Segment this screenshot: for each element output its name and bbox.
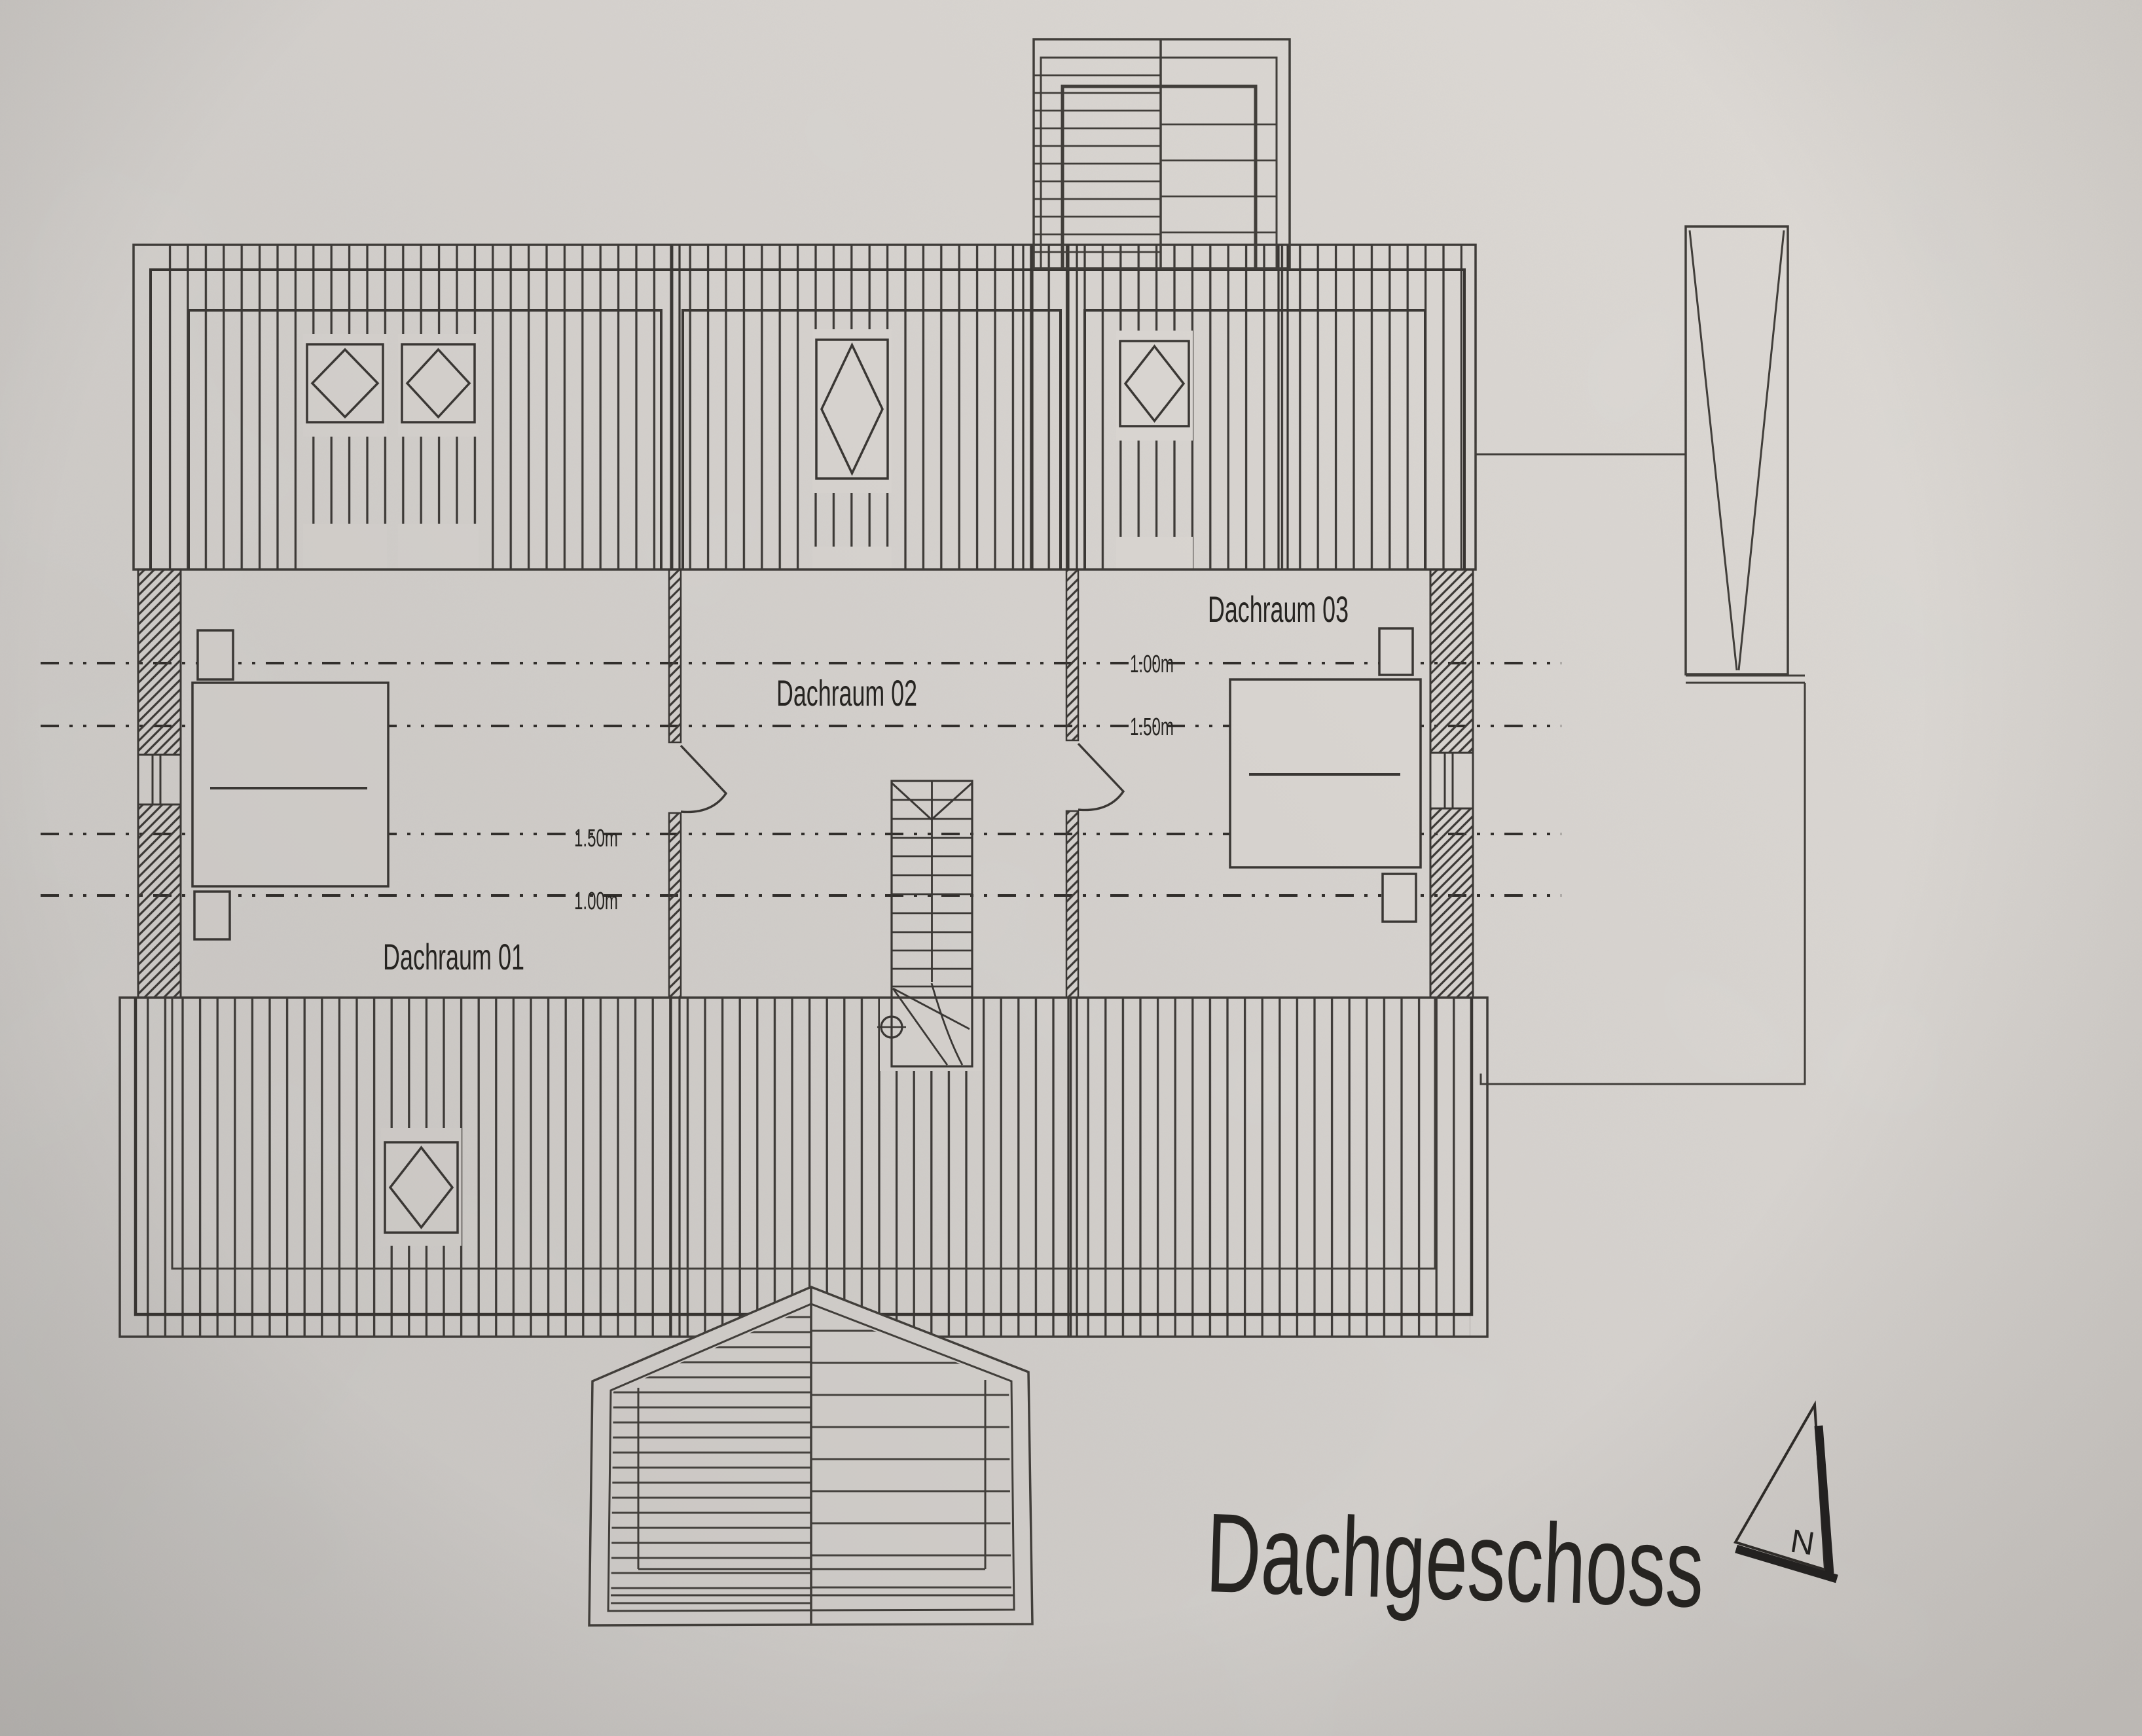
svg-text:Dachraum 01: Dachraum 01 xyxy=(383,936,524,977)
svg-text:1.00m: 1.00m xyxy=(1130,651,1174,678)
svg-text:1.00m: 1.00m xyxy=(574,888,618,915)
svg-text:Dachraum 03: Dachraum 03 xyxy=(1208,588,1349,630)
svg-text:1.50m: 1.50m xyxy=(1130,714,1174,741)
svg-text:Dachgeschoss: Dachgeschoss xyxy=(1205,1490,1706,1631)
svg-text:Dachraum 02: Dachraum 02 xyxy=(776,672,917,714)
svg-text:1.50m: 1.50m xyxy=(574,825,618,852)
